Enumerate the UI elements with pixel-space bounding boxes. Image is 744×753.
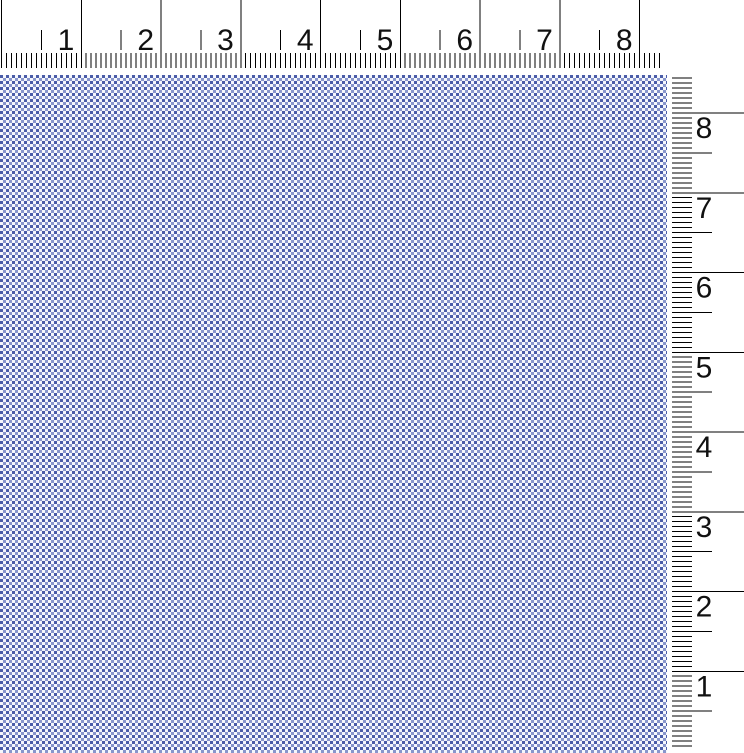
top-ruler-number: 3 xyxy=(217,24,234,57)
right-ruler-number: 2 xyxy=(696,591,713,624)
top-ruler-number: 6 xyxy=(456,24,473,57)
right-ruler-labels: 87654321 xyxy=(696,112,713,703)
right-ruler-number: 1 xyxy=(696,670,713,703)
top-ruler-number: 8 xyxy=(616,24,633,57)
top-ruler-number: 5 xyxy=(377,24,394,57)
right-ruler-number: 5 xyxy=(696,351,713,384)
right-ruler-ticks xyxy=(672,78,744,746)
top-ruler-number: 7 xyxy=(536,24,553,57)
top-ruler-number: 2 xyxy=(137,24,154,57)
fabric-pattern-fill xyxy=(0,75,667,753)
right-ruler-number: 6 xyxy=(696,272,713,305)
top-ruler-labels: 12345678 xyxy=(58,24,633,57)
right-ruler-number: 4 xyxy=(696,431,713,464)
right-ruler-number: 3 xyxy=(696,511,713,544)
right-ruler: 87654321 xyxy=(663,70,744,753)
top-ruler-ticks xyxy=(2,0,660,68)
right-ruler-number: 8 xyxy=(696,112,713,145)
fabric-measurement-view: 12345678 87654321 xyxy=(0,0,744,753)
right-ruler-number: 7 xyxy=(696,192,713,225)
top-ruler: 12345678 xyxy=(0,0,744,70)
top-ruler-number: 4 xyxy=(297,24,314,57)
top-ruler-number: 1 xyxy=(58,24,75,57)
fabric-swatch xyxy=(0,75,667,753)
